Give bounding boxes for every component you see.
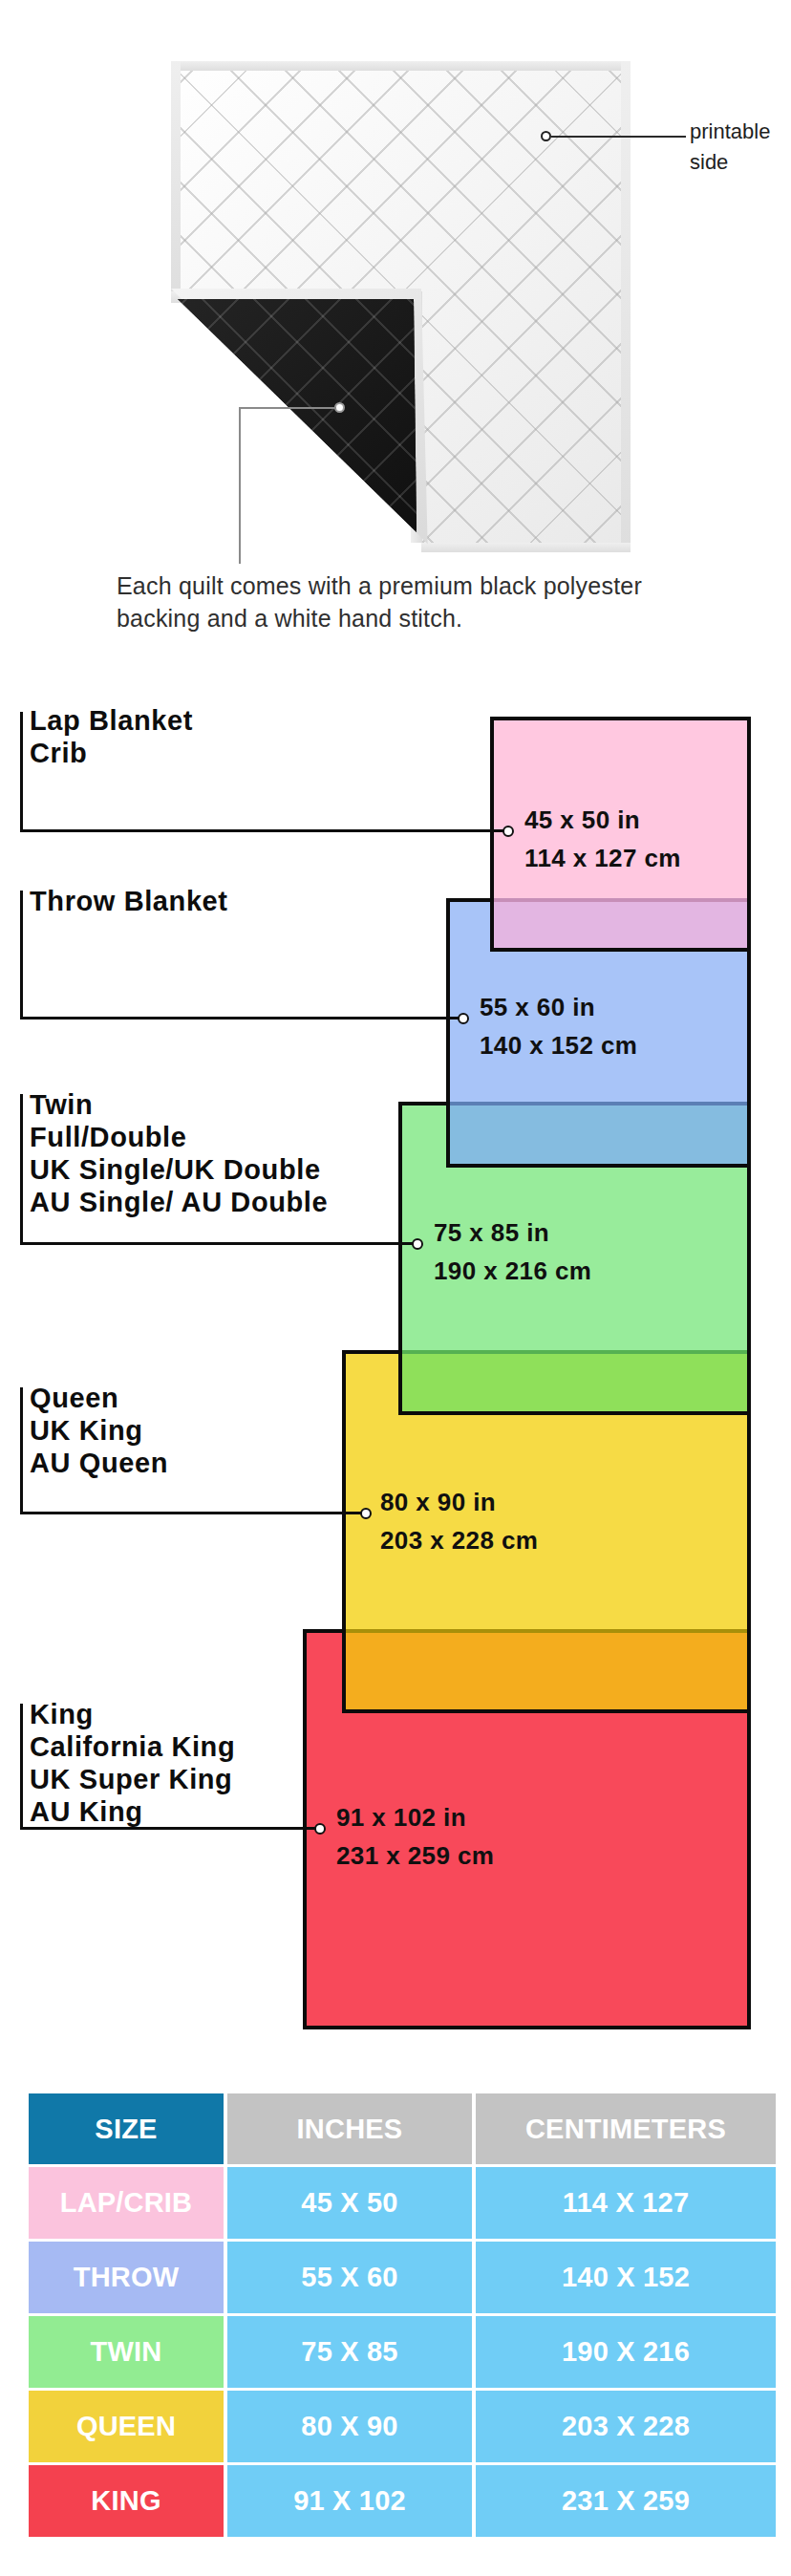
backing-callout-line-h — [241, 407, 336, 409]
quilt-binding-left — [171, 61, 181, 301]
overlap-throw-twin — [450, 1102, 747, 1164]
hero-caption-line2: backing and a white hand stitch. — [117, 602, 642, 634]
throw-dimensions-in: 55 x 60 in — [480, 993, 637, 1021]
quilt-black-backing-fold — [178, 299, 417, 532]
printable-side-callout-dot — [541, 131, 551, 141]
printable-side-callout-line — [551, 136, 686, 138]
throw-name-line1: Throw Blanket — [30, 885, 228, 917]
lap-callout-line-h — [20, 829, 504, 832]
throw-callout-line-h — [20, 1017, 460, 1020]
throw-dimensions: 55 x 60 in 140 x 152 cm — [480, 993, 637, 1060]
hero-caption: Each quilt comes with a premium black po… — [117, 569, 642, 634]
overlap-lap-throw — [494, 898, 747, 948]
king-dimensions: 91 x 102 in 231 x 259 cm — [336, 1803, 494, 1870]
twin-name-line1: Twin — [30, 1088, 328, 1121]
queen-names: Queen UK King AU Queen — [30, 1382, 168, 1479]
table-row-king-label: KING — [29, 2465, 224, 2537]
queen-callout-dot — [360, 1508, 372, 1519]
king-names: King California King UK Super King AU Ki… — [30, 1698, 235, 1828]
lap-dimensions: 45 x 50 in 114 x 127 cm — [524, 805, 681, 872]
table-row-twin-label: TWIN — [29, 2316, 224, 2388]
table-header-centimeters: CENTIMETERS — [476, 2093, 776, 2164]
table-row-throw-inches: 55 X 60 — [227, 2242, 472, 2313]
backing-callout-line-v — [239, 407, 241, 564]
throw-dimensions-cm: 140 x 152 cm — [480, 1031, 637, 1060]
table-row-king-cm: 231 X 259 — [476, 2465, 776, 2537]
throw-callout-dot — [458, 1013, 469, 1024]
lap-dimensions-in: 45 x 50 in — [524, 805, 681, 834]
table-row-queen-label: QUEEN — [29, 2391, 224, 2462]
twin-callout-line-h — [20, 1242, 414, 1245]
table-header-inches: INCHES — [227, 2093, 472, 2164]
table-header-size: SIZE — [29, 2093, 224, 2164]
lap-callout-dot — [502, 826, 514, 837]
table-row-throw-cm: 140 X 152 — [476, 2242, 776, 2313]
table-row-lap-cm: 114 X 127 — [476, 2167, 776, 2239]
table-row-lap-label: LAP/CRIB — [29, 2167, 224, 2239]
king-callout-dot — [314, 1823, 326, 1835]
queen-name-line1: Queen — [30, 1382, 168, 1414]
king-name-line2: California King — [30, 1730, 235, 1763]
printable-side-label-line2: side — [690, 147, 770, 178]
hero-caption-line1: Each quilt comes with a premium black po… — [117, 569, 642, 602]
queen-name-line2: UK King — [30, 1414, 168, 1447]
throw-names: Throw Blanket — [30, 885, 228, 917]
twin-callout-dot — [412, 1238, 423, 1250]
twin-name-line2: Full/Double — [30, 1121, 328, 1153]
table-row-queen-cm: 203 X 228 — [476, 2391, 776, 2462]
twin-dimensions-in: 75 x 85 in — [434, 1218, 591, 1247]
king-dimensions-cm: 231 x 259 cm — [336, 1841, 494, 1870]
quilt-binding-bottom — [421, 543, 631, 552]
queen-callout-line-h — [20, 1512, 362, 1514]
twin-names: Twin Full/Double UK Single/UK Double AU … — [30, 1088, 328, 1218]
table-row-king-inches: 91 X 102 — [227, 2465, 472, 2537]
quilt-size-infographic: printable side Each quilt comes with a p… — [0, 0, 791, 2576]
lap-callout-line-v — [20, 712, 23, 831]
twin-callout-line-v — [20, 1094, 23, 1245]
queen-dimensions-in: 80 x 90 in — [380, 1488, 538, 1516]
twin-name-line3: UK Single/UK Double — [30, 1153, 328, 1186]
queen-dimensions: 80 x 90 in 203 x 228 cm — [380, 1488, 538, 1555]
king-callout-line-v — [20, 1704, 23, 1830]
printable-side-label: printable side — [690, 117, 770, 178]
twin-dimensions-cm: 190 x 216 cm — [434, 1256, 591, 1285]
lap-names: Lap Blanket Crib — [30, 704, 193, 769]
twin-dimensions: 75 x 85 in 190 x 216 cm — [434, 1218, 591, 1285]
king-name-line4: AU King — [30, 1795, 235, 1828]
king-name-line3: UK Super King — [30, 1763, 235, 1795]
throw-callout-line-v — [20, 891, 23, 1020]
twin-name-line4: AU Single/ AU Double — [30, 1186, 328, 1218]
queen-name-line3: AU Queen — [30, 1447, 168, 1479]
overlap-twin-queen — [402, 1350, 747, 1411]
table-row-twin-inches: 75 X 85 — [227, 2316, 472, 2388]
table-row-lap-inches: 45 X 50 — [227, 2167, 472, 2239]
queen-callout-line-v — [20, 1387, 23, 1514]
table-row-throw-label: THROW — [29, 2242, 224, 2313]
king-name-line1: King — [30, 1698, 235, 1730]
king-dimensions-in: 91 x 102 in — [336, 1803, 494, 1832]
overlap-queen-king — [346, 1629, 747, 1709]
size-table: SIZE INCHES CENTIMETERS LAP/CRIB 45 X 50… — [29, 2093, 776, 2537]
lap-name-line1: Lap Blanket — [30, 704, 193, 737]
table-row-queen-inches: 80 X 90 — [227, 2391, 472, 2462]
lap-name-line2: Crib — [30, 737, 193, 769]
printable-side-label-line1: printable — [690, 117, 770, 147]
queen-dimensions-cm: 203 x 228 cm — [380, 1526, 538, 1555]
lap-dimensions-cm: 114 x 127 cm — [524, 844, 681, 872]
table-row-twin-cm: 190 X 216 — [476, 2316, 776, 2388]
quilt-binding-top — [171, 61, 631, 71]
